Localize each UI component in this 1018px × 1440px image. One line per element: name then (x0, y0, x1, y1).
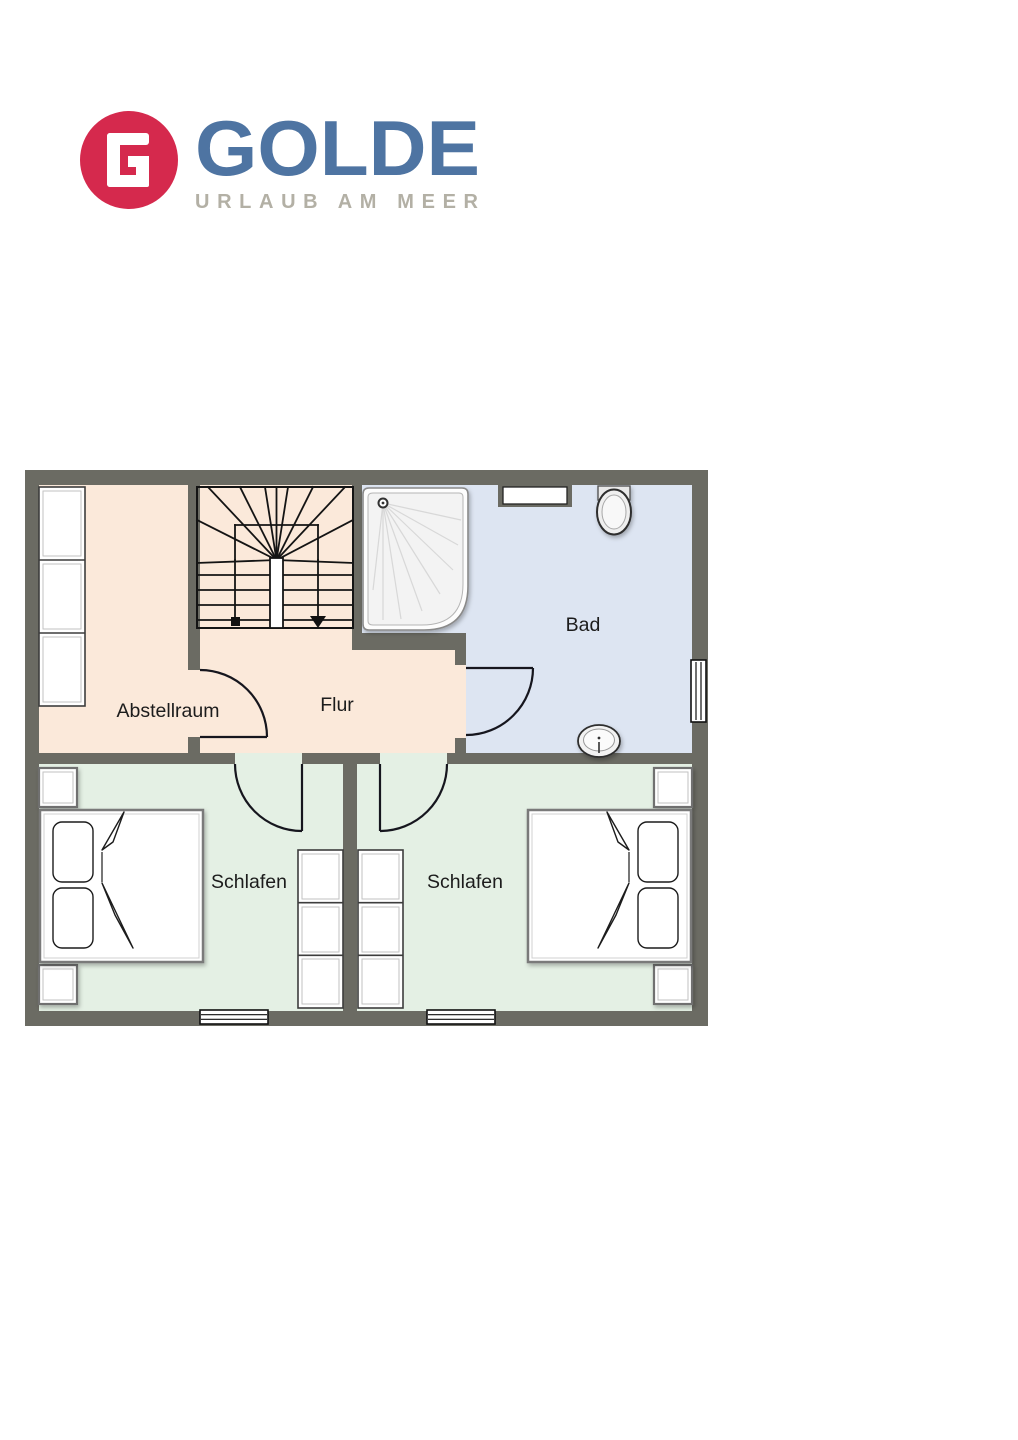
stair-divider (270, 558, 283, 628)
room-label-bad: Bad (566, 614, 601, 636)
wall-right (692, 470, 708, 1026)
nightstand (39, 965, 77, 1004)
logo-g-icon (107, 133, 149, 187)
pillow (53, 822, 93, 882)
double-bed (40, 810, 203, 962)
nightstand (39, 768, 77, 807)
room-label-abstellraum: Abstellraum (117, 700, 220, 722)
nightstand (654, 768, 692, 807)
shelf-unit (39, 487, 85, 706)
brand-name: GOLDE (195, 104, 480, 192)
wall-bedroom-divider (343, 764, 357, 1012)
toilet-icon (597, 486, 631, 535)
pillow (638, 822, 678, 882)
brand-tagline: URLAUB AM MEER (195, 191, 479, 213)
floorplan: Abstellraum Flur Bad Schlafen Schlafen (25, 470, 708, 1026)
room-label-schlafen-links: Schlafen (211, 871, 287, 893)
wall-mid-center (302, 753, 380, 764)
sink-icon (578, 725, 620, 757)
wall-mid-left (25, 753, 235, 764)
wall-shower-niche (352, 633, 466, 650)
stair-start-marker (231, 617, 240, 626)
wardrobe (358, 850, 403, 1008)
pillow (638, 888, 678, 948)
double-bed (528, 810, 691, 962)
nightstand (654, 965, 692, 1004)
window-bad-top (498, 483, 572, 507)
wall-top (25, 470, 708, 485)
golde-logo: GOLDE URLAUB AM MEER (80, 111, 480, 209)
shower (363, 488, 468, 630)
window-bedroom-left (200, 1010, 268, 1024)
page: GOLDE URLAUB AM MEER (0, 0, 1018, 1440)
wardrobe (298, 850, 343, 1008)
wall-bad-lower (455, 738, 466, 753)
wall-bottom (25, 1011, 708, 1026)
wall-abstellraum-lower (188, 737, 200, 753)
wall-left (25, 470, 39, 1026)
room-label-flur: Flur (320, 694, 354, 716)
wall-mid-right (447, 753, 708, 764)
wall-bad-upper (455, 650, 466, 665)
window-bad-right (691, 660, 706, 722)
pillow (53, 888, 93, 948)
room-label-schlafen-rechts: Schlafen (427, 871, 503, 893)
window-bedroom-right (427, 1010, 495, 1024)
wall-abstellraum-upper (188, 485, 200, 670)
